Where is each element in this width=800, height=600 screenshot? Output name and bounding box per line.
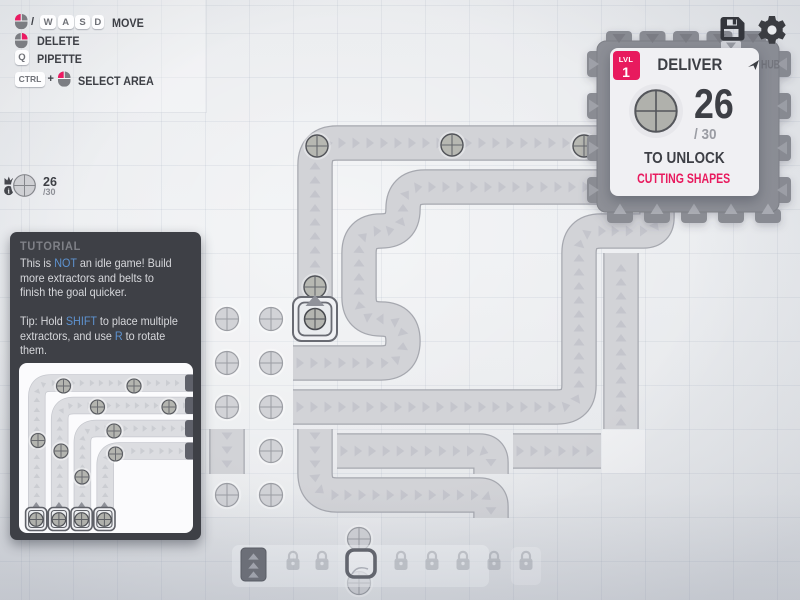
svg-text:i: i: [8, 186, 10, 195]
